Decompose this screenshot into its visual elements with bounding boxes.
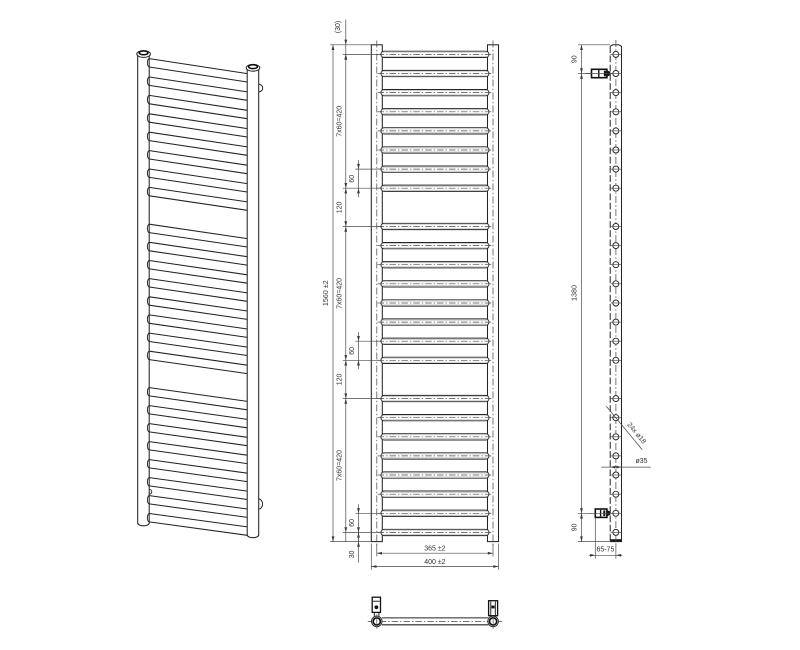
svg-text:ø35: ø35 (635, 458, 647, 465)
svg-text:65-75: 65-75 (596, 546, 614, 553)
svg-text:90: 90 (571, 523, 578, 531)
svg-text:60: 60 (349, 519, 356, 527)
svg-text:400 ±2: 400 ±2 (424, 559, 445, 566)
svg-text:1380: 1380 (569, 285, 578, 301)
svg-text:(30): (30) (335, 21, 342, 33)
svg-text:90: 90 (571, 55, 578, 63)
svg-text:7x60=420: 7x60=420 (337, 106, 344, 137)
svg-text:120: 120 (337, 201, 344, 213)
svg-text:60: 60 (349, 175, 356, 183)
svg-text:120: 120 (337, 373, 344, 385)
svg-text:1560 ±2: 1560 ±2 (321, 280, 330, 306)
svg-text:7x60=420: 7x60=420 (337, 450, 344, 481)
svg-text:60: 60 (349, 347, 356, 355)
svg-text:30: 30 (349, 551, 356, 559)
svg-text:7x60=420: 7x60=420 (337, 278, 344, 309)
svg-text:365 ±2: 365 ±2 (424, 546, 445, 553)
